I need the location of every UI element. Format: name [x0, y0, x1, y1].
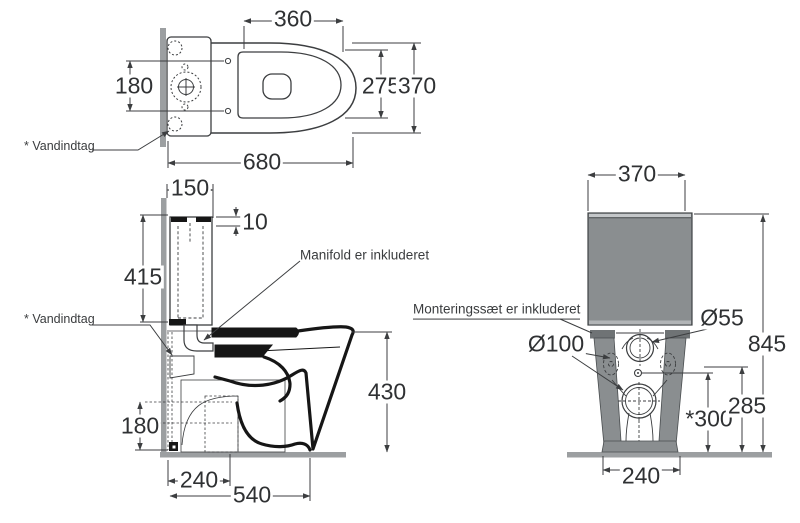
dim-bowl-width-top: 370 — [396, 75, 438, 98]
floor-side-view — [160, 452, 346, 458]
technical-drawing: 360 180 275 370 680 * Vandindtag 150 10 … — [0, 0, 800, 523]
cistern-outline-side — [170, 217, 212, 325]
inlet-hole-55 — [627, 335, 654, 362]
hinge-hole — [225, 58, 230, 63]
cistern-front — [588, 213, 692, 325]
dim-large-hole-front: Ø100 — [526, 333, 586, 356]
bowl-profile-side — [212, 327, 353, 450]
hinge-hole — [225, 108, 230, 113]
dim-seat-length-top: 360 — [272, 8, 314, 31]
cistern-leg — [590, 330, 615, 339]
cistern-lid-side — [171, 217, 187, 222]
vandindtag-leader-side — [92, 325, 172, 355]
vandindtag-label-top: * Vandindtag — [24, 140, 95, 154]
dim-total-depth-top: 680 — [241, 151, 283, 174]
vandindtag-leader-top — [92, 131, 169, 150]
bowl-outline-top — [211, 43, 356, 133]
dim-total-depth-side: 540 — [231, 484, 273, 507]
wall-side-view — [161, 198, 167, 453]
dim-total-height-front: 845 — [746, 333, 788, 356]
mounting-label: Monteringssæt er inkluderet — [413, 303, 580, 320]
dim-tank-width-front: 370 — [616, 163, 658, 186]
dim-tank-depth-side: 150 — [169, 177, 211, 200]
dim-rim-height-side: 430 — [366, 381, 408, 404]
manifold-pipe — [184, 325, 213, 351]
dim-outlet-height-side: 180 — [119, 415, 161, 438]
wall-top-view — [160, 28, 166, 147]
dim-inlet-spacing-top: 180 — [113, 75, 155, 98]
manifold-label: Manifold er inkluderet — [300, 249, 429, 264]
water-outline-top — [263, 74, 291, 99]
dim-base-width-front: 240 — [620, 465, 662, 488]
floor-front-view — [567, 452, 772, 458]
dim-bracket-height-front: 285 — [726, 395, 768, 418]
vandindtag-label-side: * Vandindtag — [24, 313, 95, 327]
inlet-valve-box — [170, 356, 194, 378]
seat-outline-top — [238, 52, 341, 118]
dim-tank-height-side: 415 — [122, 266, 164, 289]
dim-small-hole-front: Ø55 — [698, 307, 745, 330]
dim-lid-height-side: 10 — [240, 211, 270, 234]
dim-outlet-distance-side: 240 — [178, 469, 220, 492]
water-inlet-hole-top — [168, 117, 182, 131]
